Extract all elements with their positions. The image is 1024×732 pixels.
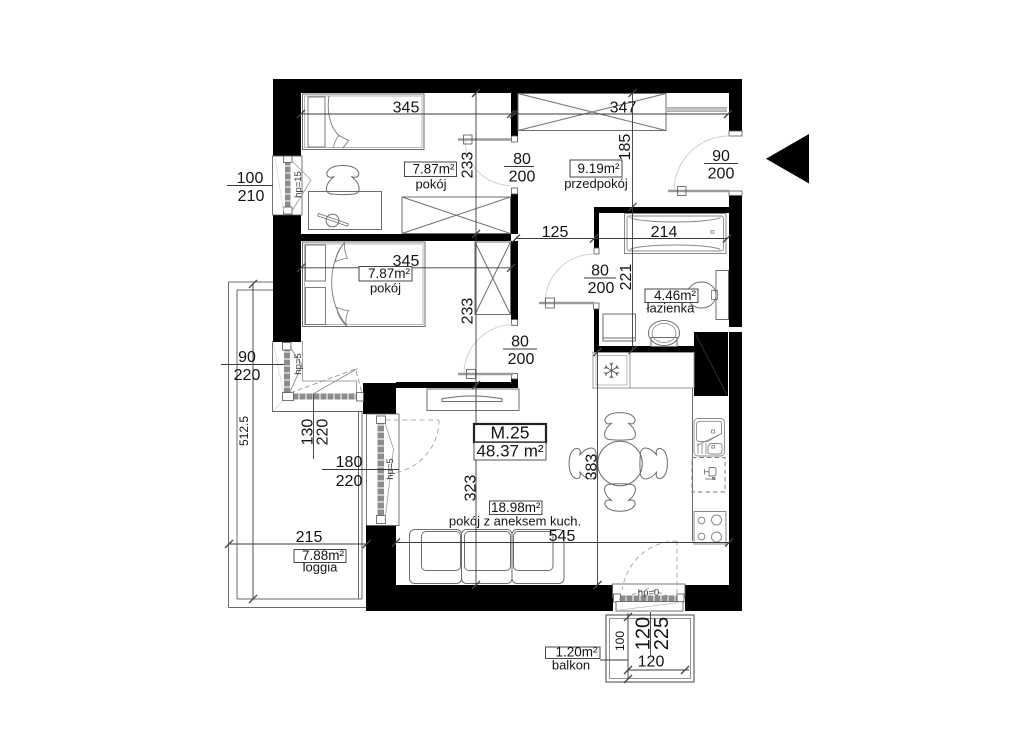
svg-text:łazienka: łazienka [647,301,695,316]
svg-text:7.87m²: 7.87m² [368,266,411,281]
svg-text:545: 545 [549,528,576,545]
svg-text:pokój: pokój [370,281,401,296]
svg-text:100: 100 [613,631,627,651]
svg-text:pokój z aneksem kuch.: pokój z aneksem kuch. [449,514,581,529]
svg-text:100: 100 [237,170,264,187]
svg-text:M.25: M.25 [491,423,530,443]
svg-text:pokój: pokój [415,177,446,192]
svg-text:200: 200 [588,280,615,297]
svg-text:210: 210 [238,188,265,205]
svg-text:przedpokój: przedpokój [564,176,628,191]
svg-text:80: 80 [511,334,529,351]
svg-text:90: 90 [712,148,730,165]
svg-text:90: 90 [238,349,256,366]
svg-text:200: 200 [508,351,535,368]
svg-text:hp=0: hp=0 [638,588,659,599]
svg-text:200: 200 [708,166,735,183]
svg-text:200: 200 [509,169,536,186]
svg-text:hp=5: hp=5 [385,458,396,479]
svg-text:120: 120 [638,654,665,671]
svg-text:214: 214 [651,224,678,241]
svg-text:220: 220 [234,367,261,384]
svg-text:220: 220 [336,473,363,490]
svg-text:180: 180 [336,454,363,471]
svg-text:balkon: balkon [552,658,590,673]
svg-text:hp=5: hp=5 [293,353,304,374]
svg-text:125: 125 [542,224,569,241]
svg-text:323: 323 [463,475,480,502]
svg-text:9.19m²: 9.19m² [577,161,620,176]
svg-text:225: 225 [651,617,673,650]
svg-text:233: 233 [460,298,477,325]
svg-text:80: 80 [591,263,609,280]
svg-text:hp=15: hp=15 [293,171,304,198]
svg-text:80: 80 [513,151,531,168]
svg-text:48.37 m²: 48.37 m² [476,442,543,461]
svg-text:185: 185 [617,134,634,161]
svg-text:221: 221 [618,264,635,291]
svg-text:383: 383 [584,454,601,481]
svg-text:7.87m²: 7.87m² [412,162,455,177]
svg-text:233: 233 [460,152,477,179]
svg-text:220: 220 [315,419,332,446]
svg-text:345: 345 [393,100,420,117]
svg-text:loggia: loggia [303,560,338,575]
svg-text:512.5: 512.5 [237,416,251,446]
svg-text:215: 215 [296,529,323,546]
